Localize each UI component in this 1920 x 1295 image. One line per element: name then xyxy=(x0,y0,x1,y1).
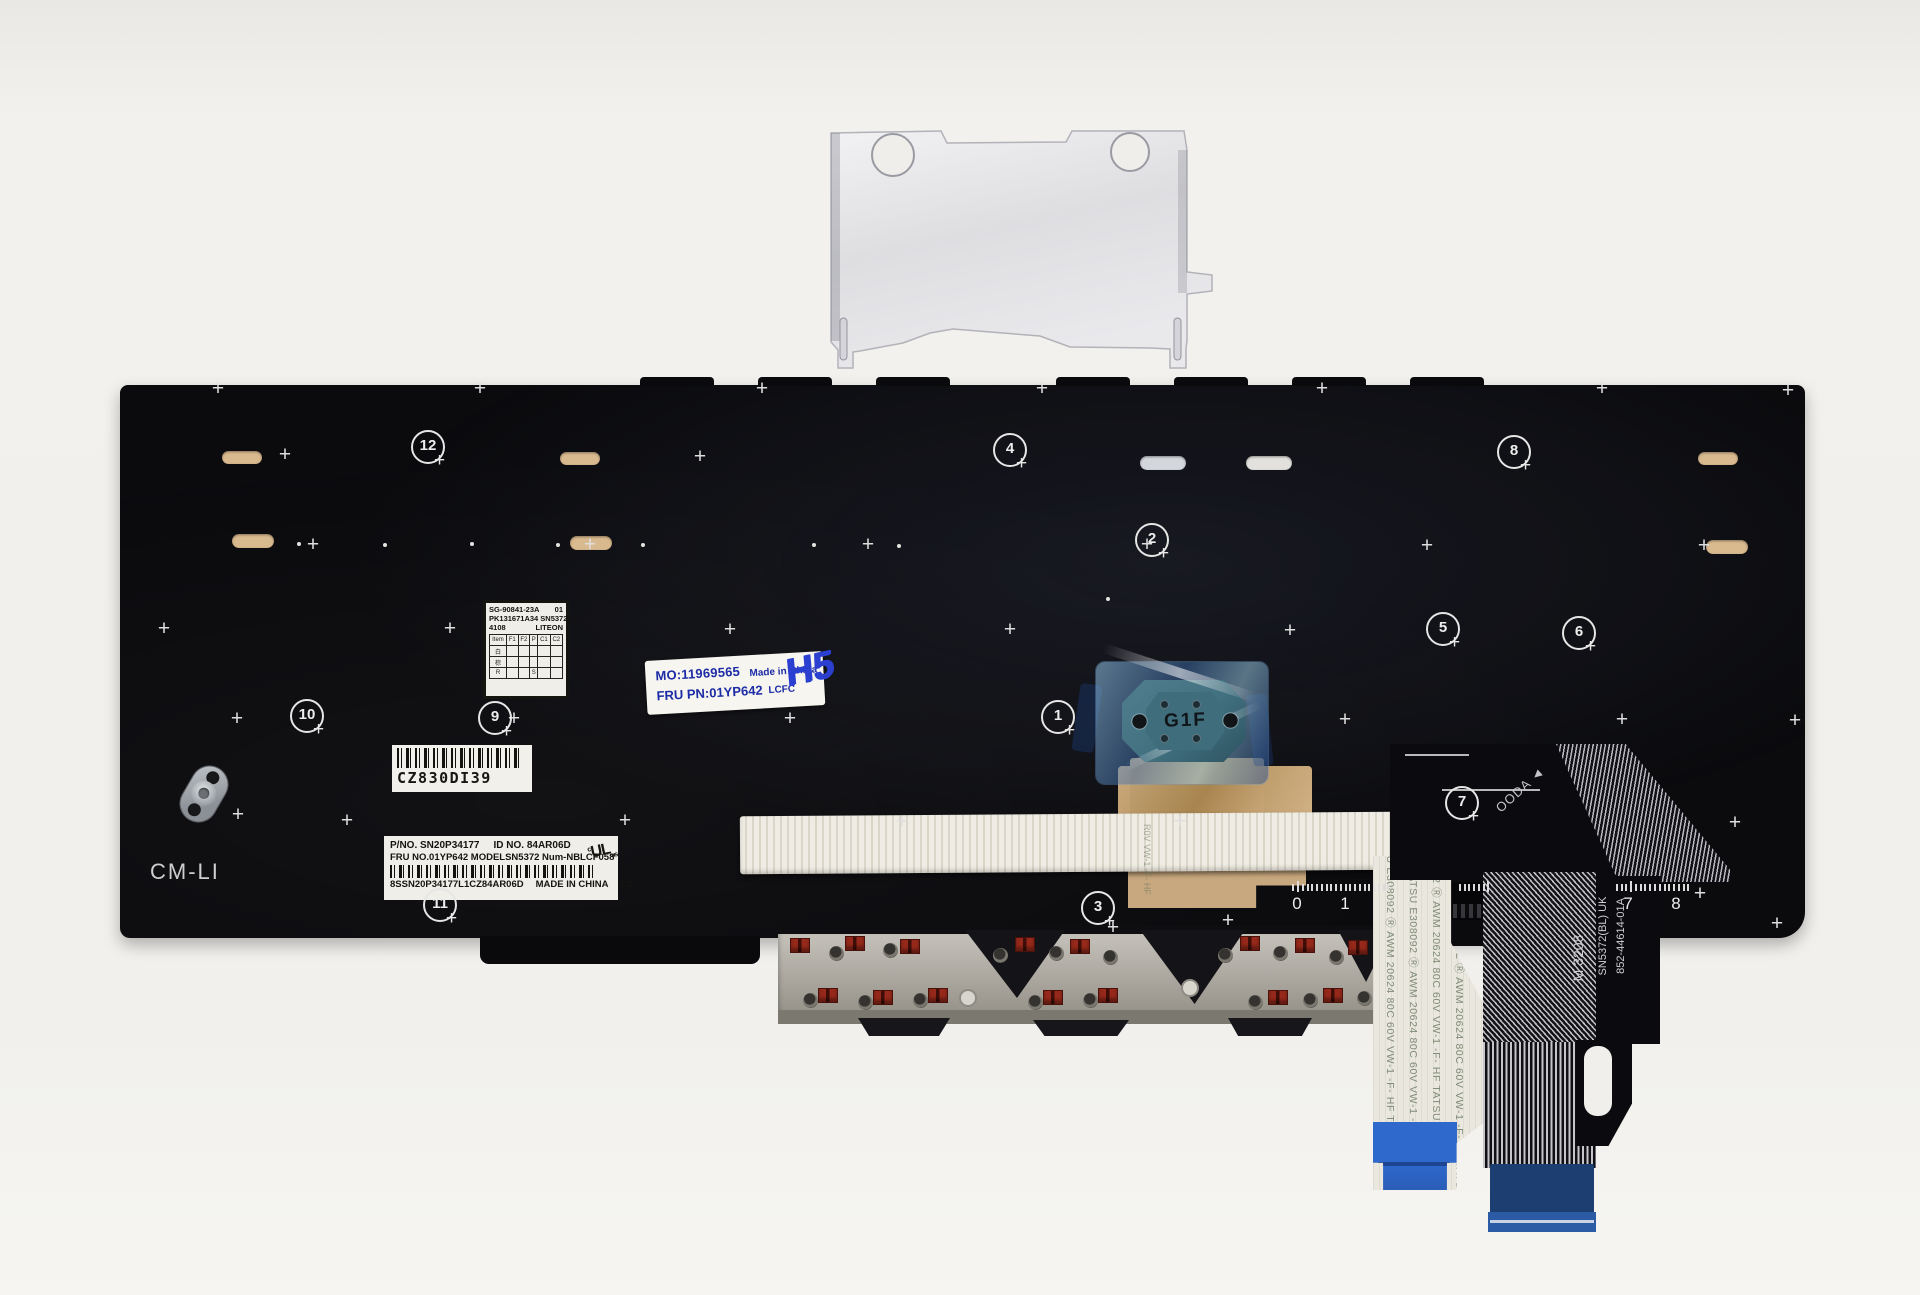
liteon-cell: S xyxy=(530,668,538,679)
callout-1: 1+ xyxy=(1041,700,1075,734)
registration-plus: + xyxy=(1339,708,1351,732)
switch-clip xyxy=(1295,938,1315,953)
liteon-cell xyxy=(530,657,538,668)
diffuser-slot xyxy=(560,452,600,465)
connector-line xyxy=(1378,1162,1450,1166)
liteon-pk-number: PK131671A34 SN53722 xyxy=(489,614,572,623)
ul-us: us xyxy=(610,851,617,859)
trackpoint-screw-left xyxy=(1131,713,1148,730)
main-origin: MADE IN CHINA xyxy=(536,879,609,890)
liteon-cell: C1 xyxy=(538,635,550,646)
ruler-tick xyxy=(1621,884,1623,891)
registration-plus: + xyxy=(1596,377,1608,401)
registration-plus: + xyxy=(619,809,631,833)
registration-plus: + xyxy=(724,618,736,642)
ruler-tick xyxy=(1649,884,1651,891)
liteon-cell: Item xyxy=(490,635,507,646)
ruler-tick xyxy=(1307,884,1309,891)
ruler-tick xyxy=(1387,884,1389,891)
ruler-tick xyxy=(1464,884,1466,891)
ruler-tick xyxy=(1335,884,1337,891)
ruler-tick xyxy=(1373,884,1375,891)
registration-plus: + xyxy=(444,617,456,641)
liteon-cell xyxy=(518,668,530,679)
switch-clip xyxy=(1240,936,1260,951)
cable-batch-code: M 3208 xyxy=(1570,923,1586,993)
switch-clip xyxy=(790,938,810,953)
registration-dot xyxy=(383,543,387,547)
flex-connector-left xyxy=(1373,1122,1457,1190)
main-fru-model: FRU NO.01YP642 MODELSN5372 Num-NBLCF058 xyxy=(390,852,612,863)
registration-dot xyxy=(297,542,301,546)
registration-plus: + xyxy=(231,707,243,731)
plate-edge-nub xyxy=(1410,377,1484,386)
membrane-pad-white xyxy=(1181,979,1199,997)
switch-clip xyxy=(1323,988,1343,1003)
registration-plus: + xyxy=(1174,810,1186,834)
liteon-cell: P xyxy=(530,635,538,646)
membrane-pad xyxy=(1083,993,1098,1008)
ruler-tick xyxy=(1487,881,1489,892)
ruler-tick xyxy=(1364,884,1366,891)
switch-clip xyxy=(1098,988,1118,1003)
registration-plus: + xyxy=(862,533,874,557)
registration-plus: + xyxy=(694,445,706,469)
diffuser-slot xyxy=(1706,540,1748,554)
registration-plus: + xyxy=(1222,909,1234,933)
membrane-pad xyxy=(1357,991,1372,1006)
callout-plus: + xyxy=(446,905,457,933)
callout-plus: + xyxy=(1468,803,1479,831)
registration-plus: + xyxy=(1698,534,1710,558)
switch-clip xyxy=(845,936,865,951)
ruler-tick xyxy=(1673,884,1675,891)
switch-clip xyxy=(818,988,838,1003)
ruler-tick xyxy=(1349,884,1351,891)
plate-edge-nub xyxy=(1292,377,1366,386)
callout-7: 7+ xyxy=(1445,786,1479,820)
photo-canvas: ++++++++++++++++++++++++++++++++++++ SG-… xyxy=(0,0,1920,1295)
ruler-tick xyxy=(1368,884,1370,891)
ruler-tick xyxy=(1330,884,1332,891)
registration-plus: + xyxy=(1036,377,1048,401)
diffuser-slot xyxy=(1698,452,1738,465)
keycap-tab xyxy=(1228,1018,1312,1036)
membrane-pad xyxy=(1218,948,1233,963)
ruler-tick xyxy=(1383,884,1385,891)
callout-plus: + xyxy=(1585,633,1596,661)
bracket-right-shade xyxy=(1178,150,1187,293)
callout-2: 2+ xyxy=(1135,523,1169,557)
membrane-pad xyxy=(829,946,844,961)
liteon-cell xyxy=(530,646,538,657)
registration-plus: + xyxy=(1421,534,1433,558)
ruler-tick xyxy=(1340,884,1342,891)
membrane-pad xyxy=(1303,993,1318,1008)
ruler-tick xyxy=(1478,884,1480,891)
ruler-tick xyxy=(1302,884,1304,891)
switch-clip xyxy=(1043,990,1063,1005)
liteon-cell: 棕 xyxy=(490,657,507,668)
liteon-table: ItemF1F2PC1C2白棕RS xyxy=(489,634,563,679)
liteon-rev: 01 xyxy=(555,605,563,614)
switch-clip xyxy=(900,939,920,954)
ruler-number: 8 xyxy=(1671,894,1680,914)
registration-plus: + xyxy=(474,377,486,401)
cm-li-marking: CM-LI xyxy=(150,859,220,885)
liteon-cell xyxy=(550,646,562,657)
switch-clip xyxy=(873,990,893,1005)
registration-dot xyxy=(641,543,645,547)
membrane-ribbon-cable xyxy=(740,812,1398,875)
barcode-text: CZ830DI39 xyxy=(397,769,527,787)
trackpoint-hole xyxy=(1192,700,1201,709)
ruler-tick xyxy=(1359,884,1361,891)
liteon-cell xyxy=(506,646,518,657)
ruler-tick xyxy=(1683,884,1685,891)
registration-plus: + xyxy=(158,617,170,641)
callout-6: 6+ xyxy=(1562,616,1596,650)
main-pno: P/NO. SN20P34177 xyxy=(390,840,480,851)
trackpoint-hole xyxy=(1160,734,1169,743)
membrane-pad xyxy=(1273,946,1288,961)
callout-4: 4+ xyxy=(993,433,1027,467)
callout-number: 1 xyxy=(1054,707,1062,724)
metal-bracket xyxy=(820,105,1220,380)
ruler-tick xyxy=(1659,884,1661,891)
ruler-tick xyxy=(1668,884,1670,891)
callout-3: 3+ xyxy=(1081,891,1115,925)
mo-number: MO:11969565 xyxy=(655,664,740,684)
ruler-tick xyxy=(1345,884,1347,891)
liteon-cell: F2 xyxy=(518,635,530,646)
ruler-tick xyxy=(1640,884,1642,891)
registration-plus: + xyxy=(1616,708,1628,732)
callout-number: 5 xyxy=(1439,619,1447,636)
cable-marking-faint: R0V VW-1 -F- HF xyxy=(1142,824,1152,914)
callout-9: 9+ xyxy=(478,701,512,735)
callout-number: 8 xyxy=(1510,442,1518,459)
diffuser-slot xyxy=(232,534,274,548)
callout-8: 8+ xyxy=(1497,435,1531,469)
ul-logo: UL xyxy=(589,841,611,862)
callout-plus: + xyxy=(313,716,324,744)
ruler-tick xyxy=(1459,884,1461,891)
liteon-cell xyxy=(550,657,562,668)
diffuser-slot xyxy=(1140,456,1186,470)
plate-bottom-tab xyxy=(480,936,760,964)
cable-marking-text: TATSU E308092 Ⓡ AWM 20624 80C 60V VW-1 -… xyxy=(1429,856,1444,1128)
registration-plus: + xyxy=(341,809,353,833)
ruler-number: 0 xyxy=(1292,894,1301,914)
trackpoint-label: G1F xyxy=(1163,709,1207,732)
ruler-tick xyxy=(1625,884,1627,891)
main-idno: ID NO. 84AR06D xyxy=(494,840,571,851)
callout-plus: + xyxy=(1158,540,1169,568)
registration-plus: + xyxy=(279,443,291,467)
ruler-number: 7 xyxy=(1623,894,1632,914)
liteon-cell xyxy=(518,646,530,657)
ruler-tick xyxy=(1316,884,1318,891)
membrane-pad xyxy=(883,943,898,958)
diffuser-slot xyxy=(1246,456,1292,470)
ruler-tick xyxy=(1644,884,1646,891)
liteon-part-number: SG-90841-23A xyxy=(489,605,539,614)
trackpoint-hole xyxy=(1160,700,1169,709)
switch-clip xyxy=(1015,937,1035,952)
registration-plus: + xyxy=(1316,377,1328,401)
callout-11: 11+ xyxy=(423,888,457,922)
switch-clip xyxy=(928,988,948,1003)
fru-pn: FRU PN:01YP642 xyxy=(656,682,763,703)
registration-plus: + xyxy=(212,377,224,401)
ruler-tick xyxy=(1311,884,1313,891)
liteon-cell xyxy=(506,657,518,668)
registration-plus: + xyxy=(1004,618,1016,642)
bracket-hole-left xyxy=(872,134,914,176)
callout-plus: + xyxy=(1064,717,1075,745)
registration-dot xyxy=(897,544,901,548)
callout-plus: + xyxy=(1016,450,1027,478)
callout-plus: + xyxy=(1449,629,1460,657)
callout-number: 6 xyxy=(1575,623,1583,640)
main-serial: 8SSN20P34177L1CZ84AR06D xyxy=(390,879,524,890)
registration-plus: + xyxy=(1694,882,1706,906)
registration-dot xyxy=(556,543,560,547)
callout-number: 3 xyxy=(1094,898,1102,915)
registration-dot xyxy=(470,542,474,546)
registration-plus: + xyxy=(896,810,908,834)
mo-sticker: MO:11969565 FRU PN:01YP642 Made in China… xyxy=(645,651,826,715)
ruler-tick xyxy=(1297,881,1299,892)
ruler-tick xyxy=(1321,884,1323,891)
registration-dot xyxy=(812,543,816,547)
registration-plus: + xyxy=(756,377,768,401)
registration-plus: + xyxy=(1284,619,1296,643)
liteon-cell xyxy=(518,657,530,668)
registration-plus: + xyxy=(307,533,319,557)
bracket-slot-right xyxy=(1174,318,1181,360)
ruler-tick xyxy=(1354,884,1356,891)
liteon-cell xyxy=(506,668,518,679)
liteon-brand: LITEON xyxy=(536,623,564,632)
membrane-pad xyxy=(913,993,928,1008)
connector-edge-line xyxy=(1490,1220,1594,1223)
cable-edge-line xyxy=(1405,754,1469,756)
callout-number: 2 xyxy=(1148,530,1156,547)
bracket-left-shade xyxy=(831,133,840,341)
switch-clip xyxy=(1070,939,1090,954)
ruler-number: 1 xyxy=(1340,894,1349,914)
membrane-pad xyxy=(993,948,1008,963)
membrane-pad-white xyxy=(959,989,977,1007)
registration-plus: + xyxy=(1729,811,1741,835)
ruler-tick xyxy=(1292,884,1294,891)
ruler-tick xyxy=(1678,884,1680,891)
exposed-membrane-area xyxy=(778,926,1392,1022)
cable-part-text: SN5372(BL) UK xyxy=(1597,871,1609,1001)
liteon-cell: C2 xyxy=(550,635,562,646)
flex-stiffener-navy xyxy=(1490,1164,1594,1214)
registration-plus: + xyxy=(1771,912,1783,936)
callout-number: 7 xyxy=(1458,793,1466,810)
ruler-tick xyxy=(1635,884,1637,891)
membrane-pad xyxy=(858,995,873,1010)
registration-plus: + xyxy=(784,707,796,731)
ruler-tick xyxy=(1483,884,1485,891)
ruler-tick xyxy=(1468,884,1470,891)
membrane-pad xyxy=(803,993,818,1008)
callout-12: 12+ xyxy=(411,430,445,464)
ruler-tick xyxy=(1664,884,1666,891)
ruler-tick xyxy=(1654,884,1656,891)
trackpoint-inner-plate: G1F xyxy=(1146,692,1224,750)
callout-10: 10+ xyxy=(290,699,324,733)
membrane-pad xyxy=(1049,946,1064,961)
registration-plus: + xyxy=(1789,709,1801,733)
trackpoint-hole xyxy=(1192,734,1201,743)
registration-plus: + xyxy=(232,803,244,827)
liteon-cell: R xyxy=(490,668,507,679)
registration-plus: + xyxy=(584,533,596,557)
barcode-label: CZ830DI39 xyxy=(392,745,532,792)
liteon-code: 4108 xyxy=(489,623,506,632)
ruler-tick xyxy=(1326,884,1328,891)
diffuser-slot xyxy=(222,451,262,464)
membrane-pad xyxy=(1103,950,1118,965)
registration-plus: + xyxy=(1782,379,1794,403)
keycap-tab xyxy=(858,1018,950,1036)
callout-plus: + xyxy=(434,447,445,475)
ruler-tick xyxy=(1630,881,1632,892)
ruler-tick xyxy=(1378,884,1380,891)
main-rev: C2 xyxy=(620,879,632,890)
callout-number: 4 xyxy=(1006,440,1014,457)
liteon-cell xyxy=(550,668,562,679)
switch-clip xyxy=(1348,940,1368,955)
main-spec-label: P/NO. SN20P34177ID NO. 84AR06D FRU NO.01… xyxy=(384,836,618,900)
connector-alignment-slot xyxy=(1584,1046,1612,1116)
keycap-tab xyxy=(1033,1020,1129,1036)
registration-dot xyxy=(1106,597,1110,601)
callout-plus: + xyxy=(1520,452,1531,480)
membrane-top-strip xyxy=(778,926,1392,934)
liteon-cell xyxy=(538,646,550,657)
main-barcode xyxy=(390,865,595,878)
membrane-pad xyxy=(1248,995,1263,1010)
liteon-cell: F1 xyxy=(506,635,518,646)
trackpoint-screw-right xyxy=(1222,712,1239,729)
ruler-tick xyxy=(1616,884,1618,891)
liteon-cell xyxy=(538,657,550,668)
plate-edge-nub xyxy=(640,377,714,386)
liteon-spec-label: SG-90841-23A01 PK131671A34 SN53722 4108L… xyxy=(483,600,569,699)
callout-plus: + xyxy=(501,718,512,746)
liteon-cell xyxy=(538,668,550,679)
callout-plus: + xyxy=(1104,908,1115,936)
ruler-tick xyxy=(1473,884,1475,891)
switch-clip xyxy=(1268,990,1288,1005)
barcode-stripes xyxy=(397,748,523,768)
membrane-pad xyxy=(1028,995,1043,1010)
cable-marking-text: TATSU E308092 Ⓡ AWM 20624 80C 60V VW-1 -… xyxy=(1383,856,1398,1158)
liteon-cell: 白 xyxy=(490,646,507,657)
callout-5: 5+ xyxy=(1426,612,1460,646)
ruler-tick xyxy=(1687,884,1689,891)
bracket-slot-left xyxy=(840,318,847,360)
membrane-pad xyxy=(1329,950,1344,965)
bracket-hole-right xyxy=(1111,133,1149,171)
callout-number: 9 xyxy=(491,708,499,725)
